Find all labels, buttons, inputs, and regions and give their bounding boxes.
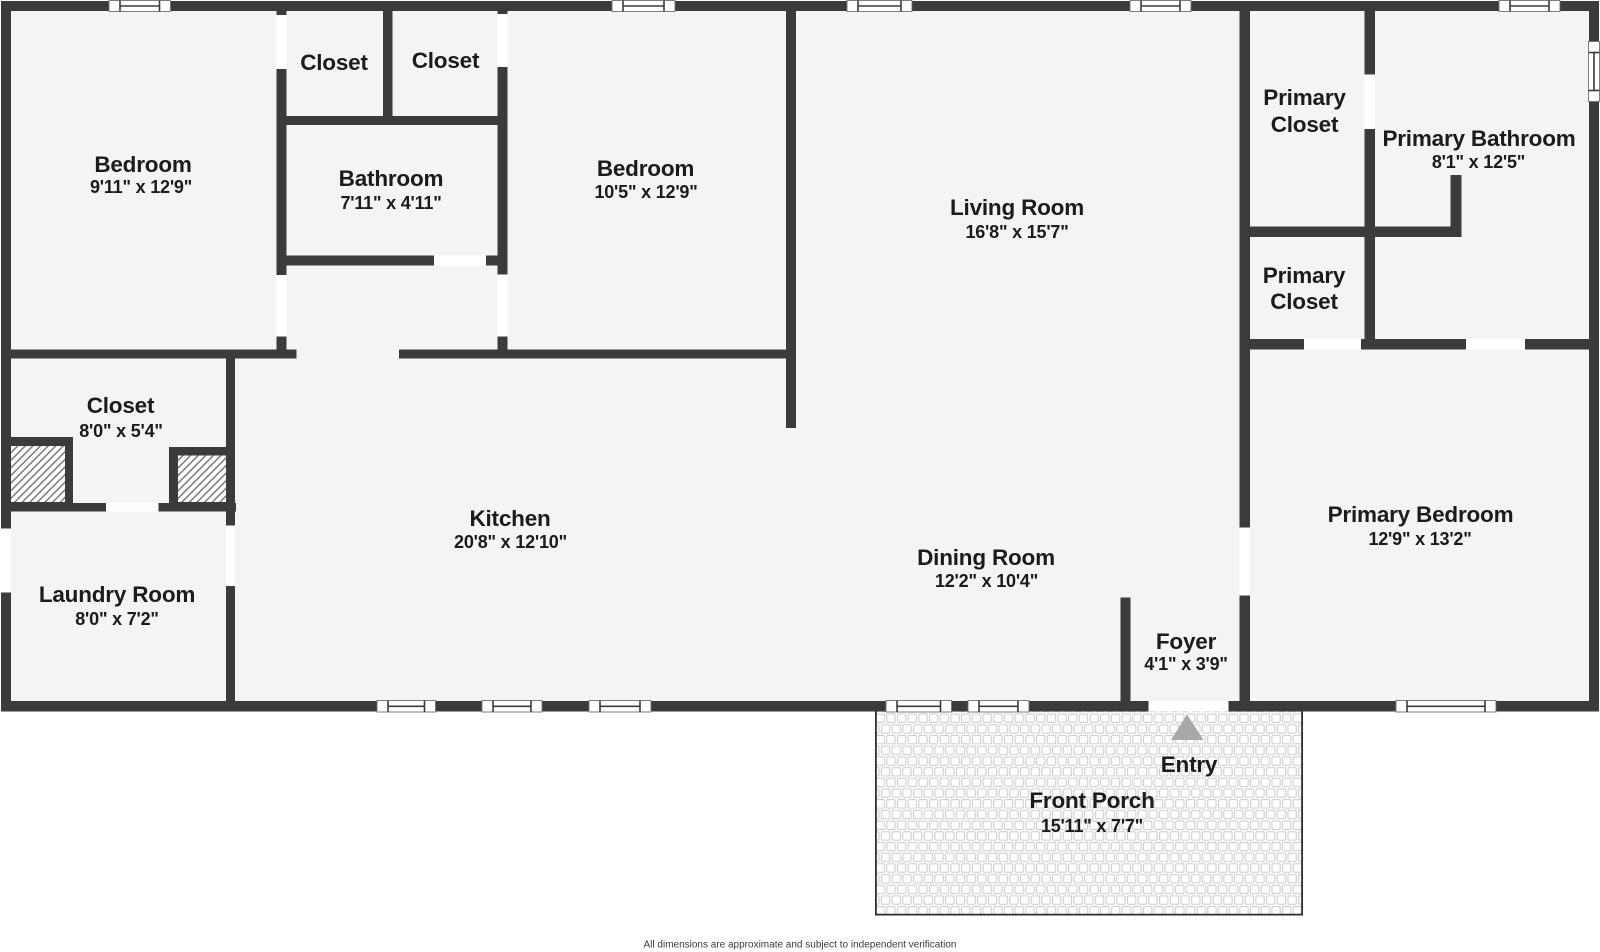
svg-text:Laundry Room: Laundry Room	[39, 582, 195, 607]
svg-text:Primary Bathroom: Primary Bathroom	[1382, 126, 1575, 151]
svg-text:Closet: Closet	[412, 48, 480, 73]
svg-text:Closet: Closet	[300, 50, 368, 75]
svg-text:Primary Bedroom: Primary Bedroom	[1328, 502, 1514, 527]
svg-text:7'11" x 4'11": 7'11" x 4'11"	[340, 193, 441, 213]
svg-text:12'2" x 10'4": 12'2" x 10'4"	[935, 571, 1038, 591]
svg-text:Primary: Primary	[1263, 85, 1346, 110]
svg-text:4'1" x 3'9": 4'1" x 3'9"	[1144, 654, 1228, 674]
svg-text:Bedroom: Bedroom	[94, 152, 191, 177]
svg-text:All dimensions are approximate: All dimensions are approximate and subje…	[644, 940, 957, 951]
svg-text:Bathroom: Bathroom	[339, 166, 444, 191]
svg-text:12'9" x 13'2": 12'9" x 13'2"	[1368, 529, 1471, 549]
svg-text:Dining Room: Dining Room	[917, 545, 1055, 570]
svg-text:Closet: Closet	[87, 393, 155, 418]
svg-text:Kitchen: Kitchen	[469, 506, 550, 531]
svg-text:8'0" x 7'2": 8'0" x 7'2"	[75, 609, 159, 629]
svg-text:15'11" x 7'7": 15'11" x 7'7"	[1041, 816, 1143, 836]
svg-text:Front Porch: Front Porch	[1029, 788, 1154, 813]
svg-text:Closet: Closet	[1271, 112, 1339, 137]
svg-text:8'1" x 12'5": 8'1" x 12'5"	[1432, 152, 1525, 172]
svg-text:10'5" x 12'9": 10'5" x 12'9"	[594, 182, 697, 202]
svg-text:Closet: Closet	[1270, 289, 1338, 314]
svg-text:9'11" x 12'9": 9'11" x 12'9"	[90, 177, 192, 197]
svg-text:16'8" x 15'7": 16'8" x 15'7"	[965, 222, 1068, 242]
svg-text:20'8" x 12'10": 20'8" x 12'10"	[454, 532, 567, 552]
svg-text:8'0" x 5'4": 8'0" x 5'4"	[79, 421, 163, 441]
svg-text:Living Room: Living Room	[950, 195, 1084, 220]
svg-text:Bedroom: Bedroom	[597, 156, 694, 181]
svg-text:Primary: Primary	[1263, 263, 1346, 288]
svg-text:Entry: Entry	[1161, 752, 1218, 777]
svg-text:Foyer: Foyer	[1156, 629, 1217, 654]
